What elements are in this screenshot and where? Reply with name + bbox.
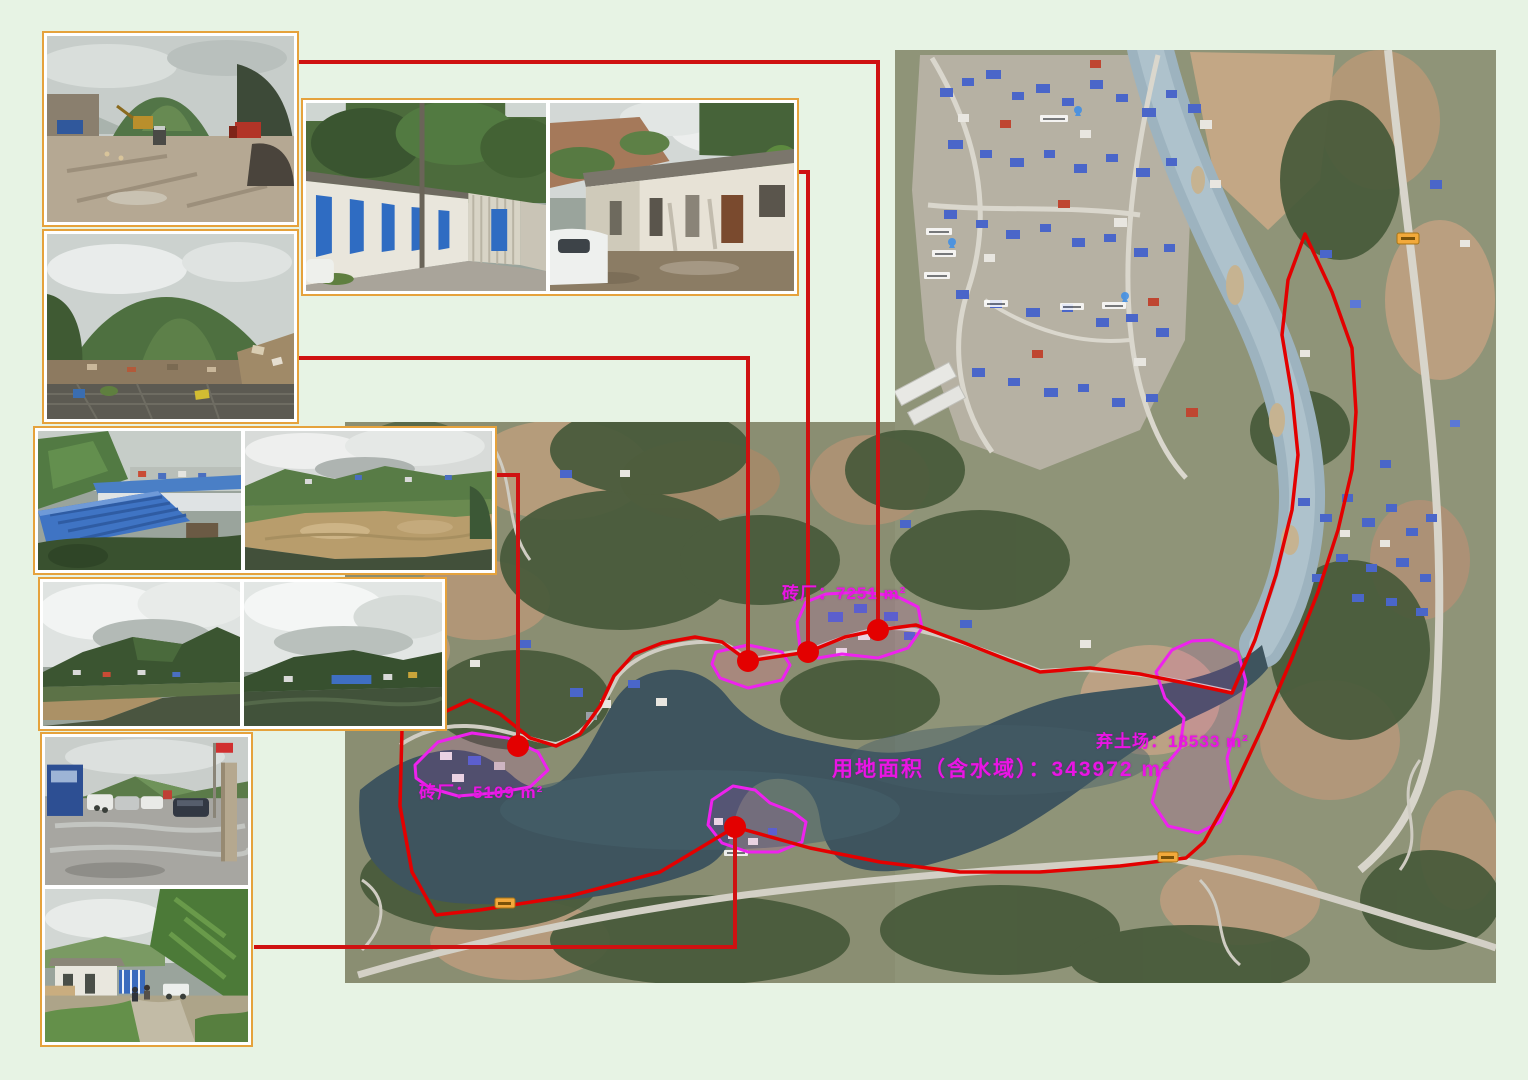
photo-panel-dark-hillside xyxy=(38,577,447,731)
photo-panel-construction-yard xyxy=(42,31,299,227)
marker-brick-7251 xyxy=(867,619,889,641)
survey-sheet: 砖厂：7251 m² 用地面积（含水域）：343972 m² 弃土场：18533… xyxy=(0,0,1528,1080)
photo-hillside-village-left xyxy=(43,582,240,726)
marker-peninsula-site xyxy=(724,816,746,838)
photo-hillside-camp xyxy=(45,889,248,1042)
photo-panel-old-houses xyxy=(301,98,799,296)
orange-road-number-badge-icon xyxy=(1158,852,1178,862)
photo-houses-brown-door xyxy=(550,103,794,291)
photo-debris-hill xyxy=(47,234,294,419)
photo-panel-debris-hill xyxy=(42,229,299,424)
photo-blue-roof-sheds xyxy=(38,431,241,570)
marker-brick-5109 xyxy=(507,735,529,757)
label-brick-plant-7251: 砖厂：7251 m² xyxy=(782,579,906,604)
photo-hillside-village-right xyxy=(244,582,442,726)
label-spoil-ground: 弃土场：18533 m² xyxy=(1096,727,1249,752)
orange-road-number-badge-icon xyxy=(1397,233,1419,244)
photo-panel-parking-hillside xyxy=(40,732,253,1047)
photo-panel-riverside xyxy=(33,426,497,575)
photo-houses-blue-doors xyxy=(306,103,546,291)
marker-houses-site xyxy=(797,641,819,663)
orange-road-number-badge-icon xyxy=(495,898,515,908)
photo-construction-yard xyxy=(47,36,294,222)
label-total-land-area: 用地面积（含水域）：343972 m² xyxy=(832,753,1171,783)
label-brick-plant-5109: 砖厂：5109 m² xyxy=(419,778,543,803)
photo-muddy-river xyxy=(245,431,492,570)
photo-parking-lot xyxy=(45,737,248,885)
marker-yard-site xyxy=(737,650,759,672)
